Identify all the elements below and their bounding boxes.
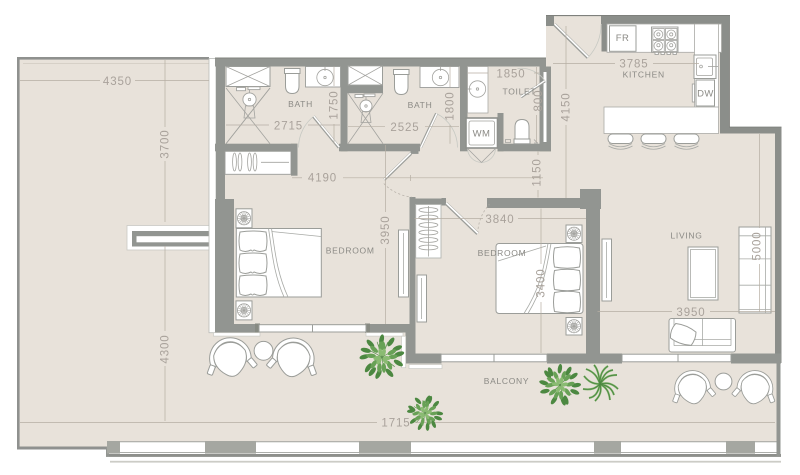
svg-text:BEDROOM: BEDROOM (478, 248, 527, 258)
svg-text:4150: 4150 (561, 92, 573, 121)
svg-text:3950: 3950 (676, 307, 705, 319)
svg-text:2525: 2525 (390, 122, 419, 134)
svg-text:4300: 4300 (160, 334, 172, 363)
svg-text:3400: 3400 (536, 268, 548, 297)
svg-text:KITCHEN: KITCHEN (623, 69, 665, 79)
svg-text:BATH: BATH (288, 99, 313, 109)
svg-text:4190: 4190 (308, 173, 337, 185)
svg-text:3700: 3700 (160, 129, 172, 158)
svg-text:1150: 1150 (532, 158, 544, 186)
svg-text:BATH: BATH (408, 100, 433, 110)
svg-text:5000: 5000 (752, 231, 764, 260)
svg-text:1850: 1850 (496, 68, 525, 80)
svg-text:1715: 1715 (381, 418, 410, 430)
svg-text:BEDROOM: BEDROOM (326, 245, 375, 255)
svg-text:DW: DW (697, 89, 714, 100)
svg-text:1750: 1750 (329, 90, 341, 119)
svg-text:1800: 1800 (445, 91, 457, 120)
svg-text:FR: FR (616, 33, 629, 44)
svg-text:2715: 2715 (274, 120, 303, 132)
svg-text:WM: WM (473, 129, 491, 140)
svg-text:LIVING: LIVING (670, 231, 702, 241)
svg-text:TOILET: TOILET (502, 86, 536, 96)
svg-text:3840: 3840 (485, 214, 514, 226)
svg-text:BALCONY: BALCONY (484, 376, 530, 386)
svg-text:4350: 4350 (103, 76, 132, 88)
svg-text:3950: 3950 (380, 215, 392, 244)
